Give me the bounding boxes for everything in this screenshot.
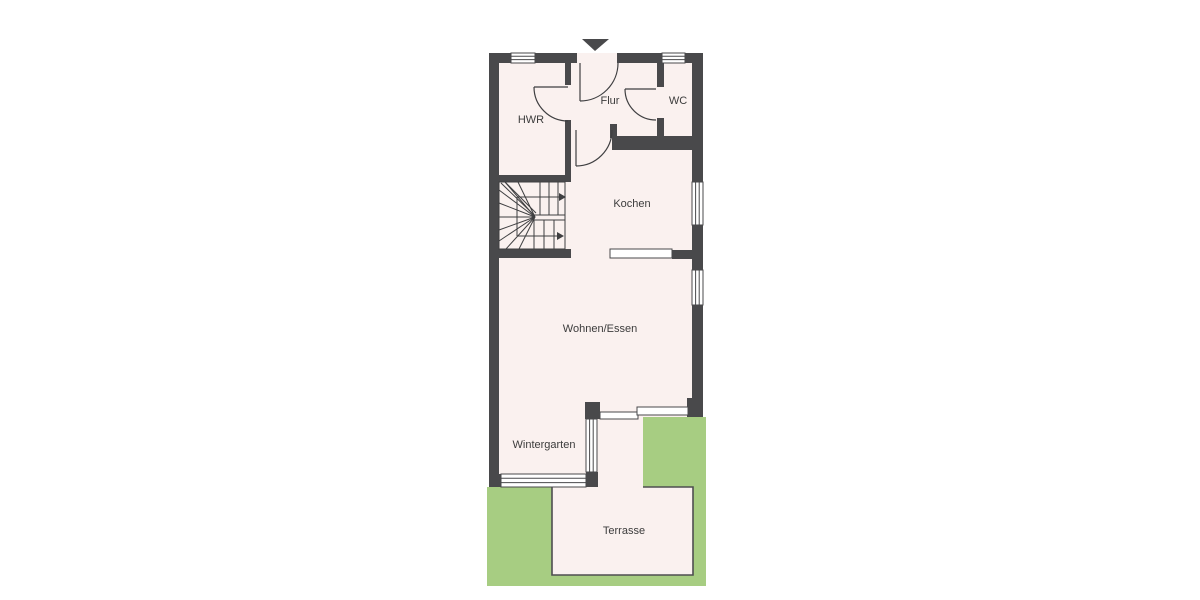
hwr-flur-wall-upper bbox=[565, 63, 571, 85]
label-wc: WC bbox=[669, 95, 687, 107]
garden-patch-left bbox=[487, 487, 552, 586]
window-wc bbox=[662, 53, 685, 63]
main-floor bbox=[489, 53, 703, 417]
garden-patch-upper-right bbox=[643, 417, 706, 487]
left-wall bbox=[489, 53, 499, 487]
wintergarten-glass-right bbox=[586, 419, 597, 472]
garden-patch-bottom bbox=[552, 575, 693, 586]
wintergarten-glass-bottom bbox=[501, 474, 586, 487]
stairwell-top-wall bbox=[489, 175, 571, 182]
label-flur: Flur bbox=[601, 95, 620, 107]
label-wohnen-essen: Wohnen/Essen bbox=[563, 323, 637, 335]
flur-bottom-wall bbox=[612, 136, 692, 150]
window-wohnen bbox=[692, 270, 703, 305]
outdoor-path-floor bbox=[597, 417, 643, 487]
label-kochen: Kochen bbox=[613, 198, 650, 210]
right-wall-corner-block bbox=[687, 398, 703, 417]
floorplan-canvas: HWR Flur WC Kochen Wohnen/Essen Winterga… bbox=[0, 0, 1200, 600]
counter-wall-stub bbox=[672, 250, 692, 259]
window-hwr bbox=[511, 53, 535, 63]
top-wall-right bbox=[617, 53, 703, 63]
label-terrasse: Terrasse bbox=[603, 525, 645, 537]
wintergarten-post-bottom-left bbox=[489, 474, 501, 487]
wc-wall-upper bbox=[657, 63, 664, 87]
right-wall bbox=[692, 53, 703, 417]
entrance-arrow-icon bbox=[582, 39, 609, 51]
floorplan: HWR Flur WC Kochen Wohnen/Essen Winterga… bbox=[0, 0, 1200, 600]
kitchen-counter-symbol bbox=[610, 249, 672, 258]
stairwell-bottom-wall bbox=[489, 249, 571, 258]
garden-patch-right bbox=[693, 487, 706, 586]
wintergarten-post-bottom-right bbox=[586, 472, 598, 487]
label-hwr: HWR bbox=[518, 114, 544, 126]
hwr-flur-wall-lower bbox=[565, 120, 571, 182]
label-wintergarten: Wintergarten bbox=[513, 439, 576, 451]
wintergarten-post-top bbox=[585, 402, 600, 419]
window-kochen bbox=[692, 182, 703, 225]
